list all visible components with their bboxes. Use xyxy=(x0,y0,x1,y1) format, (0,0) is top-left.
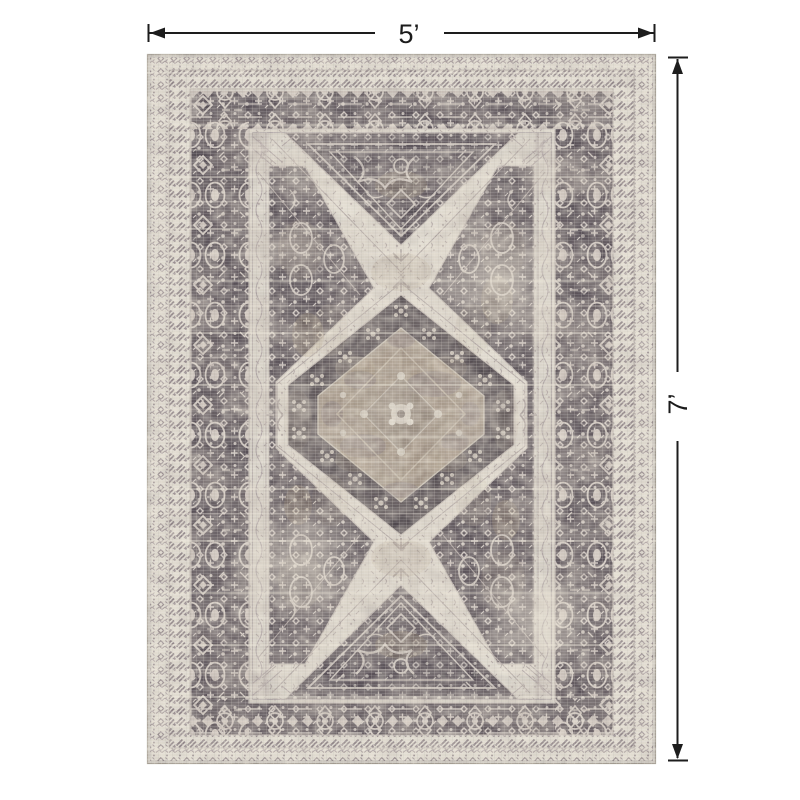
svg-text:7’: 7’ xyxy=(663,393,693,414)
svg-text:5’: 5’ xyxy=(398,19,419,49)
